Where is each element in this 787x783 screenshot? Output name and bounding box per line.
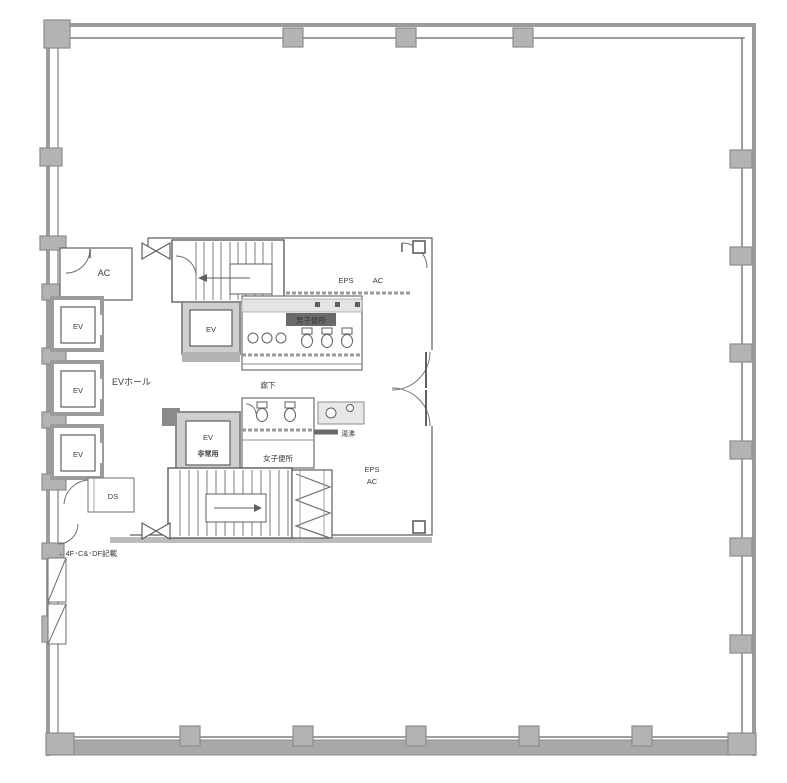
elevator-hall-label: EVホール	[112, 377, 151, 387]
womens-toilet-label: 女子便所	[263, 453, 293, 463]
elevator-3-label: EV	[73, 450, 83, 459]
mens-toilet-label: 男子便所	[296, 315, 326, 325]
column-marker-icon	[413, 241, 425, 253]
left-shaft-strip	[48, 524, 78, 644]
elevator-3: EV	[52, 426, 102, 478]
elevator-1-label: EV	[73, 322, 83, 331]
elevator-center-label: EV	[206, 325, 216, 334]
ac-top-label: AC	[373, 276, 384, 285]
elevator-2-label: EV	[73, 386, 83, 395]
sink-icon	[326, 408, 336, 418]
elevator-service-label: EV	[203, 433, 213, 442]
upper-staircase	[142, 240, 284, 302]
ac-room: AC	[60, 248, 132, 300]
floor-plan: AC EV EV EV EVホール	[0, 0, 787, 783]
elevator-2: EV	[52, 362, 102, 414]
sink-icon	[347, 405, 354, 412]
hot-water-label: 湯沸	[341, 429, 355, 438]
ac-room-label: AC	[98, 268, 111, 278]
womens-toilet: 女子便所	[242, 398, 314, 468]
column-marker-icon	[413, 521, 425, 533]
elevator-bank-left: EV EV EV EVホール	[52, 298, 151, 478]
door-arc-icon	[392, 388, 430, 426]
eps-ac-bottom: EPS AC	[364, 465, 425, 533]
mens-toilet: 男子便所	[242, 296, 362, 370]
eps-ac-top: EPS AC	[338, 276, 383, 285]
core-entrance-doors	[392, 352, 430, 426]
core-top-right-door	[402, 241, 427, 268]
elevator-center: EV	[182, 302, 240, 362]
double-swing-door-icon	[142, 243, 170, 259]
door-arc-icon	[64, 480, 88, 504]
elevator-1: EV	[52, 298, 102, 350]
hot-water-room: 湯沸	[314, 402, 364, 438]
eps-top-label: EPS	[338, 276, 353, 285]
ac-bottom-label: AC	[367, 477, 378, 486]
double-swing-door-icon	[142, 523, 170, 539]
sink-icons	[248, 333, 286, 343]
floor-plan-drawing: AC EV EV EV EVホール	[0, 0, 787, 783]
toilet-icons	[302, 328, 353, 348]
door-arc-icon	[58, 524, 78, 544]
corridor-label: 廊下	[261, 380, 276, 390]
ds-label: DS	[108, 492, 118, 501]
elevator-service: EV 非常用	[162, 408, 240, 476]
duct-shaft	[292, 470, 332, 538]
eps-bottom-label: EPS	[364, 465, 379, 474]
floor-note: ←4F･C&･DF記載	[58, 548, 118, 558]
door-arc-icon	[392, 352, 430, 390]
lower-staircase	[142, 468, 292, 539]
structural-columns	[40, 20, 756, 755]
ds-room: DS	[64, 478, 134, 512]
elevator-service-use-label: 非常用	[198, 449, 219, 458]
